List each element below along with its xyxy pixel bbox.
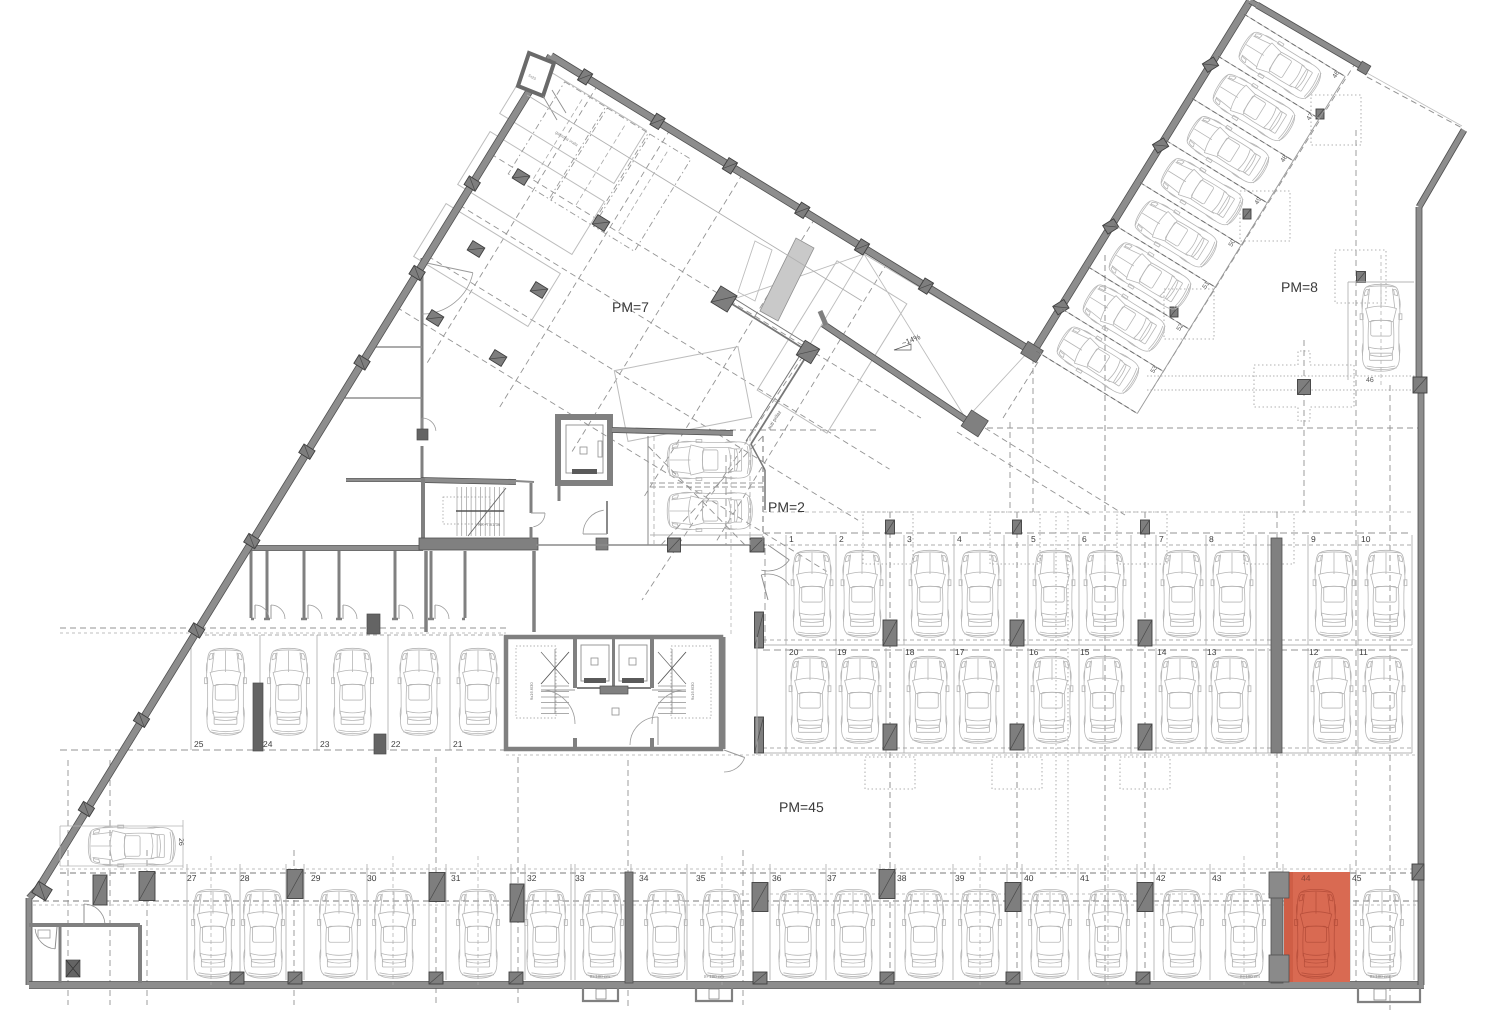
svg-text:41: 41 xyxy=(1080,873,1090,883)
svg-text:23: 23 xyxy=(320,739,330,749)
svg-text:PM=45: PM=45 xyxy=(779,799,824,815)
svg-text:PM=2: PM=2 xyxy=(768,499,805,515)
svg-text:29: 29 xyxy=(311,873,321,883)
svg-text:10: 10 xyxy=(1361,534,1371,544)
svg-text:21: 21 xyxy=(453,739,463,749)
svg-text:34: 34 xyxy=(639,873,649,883)
svg-text:45: 45 xyxy=(1352,873,1362,883)
svg-text:38: 38 xyxy=(897,873,907,883)
svg-text:24: 24 xyxy=(263,739,273,749)
svg-text:28: 28 xyxy=(240,873,250,883)
svg-text:9x16.6/30: 9x16.6/30 xyxy=(529,682,534,700)
svg-text:43: 43 xyxy=(1212,873,1222,883)
svg-text:7: 7 xyxy=(1159,534,1164,544)
svg-text:22: 22 xyxy=(391,739,401,749)
svg-text:9x16.6/30: 9x16.6/30 xyxy=(690,682,695,700)
svg-text:PM=7: PM=7 xyxy=(612,299,649,315)
svg-text:18: 18 xyxy=(905,647,915,657)
svg-text:14: 14 xyxy=(1157,647,1167,657)
svg-text:25: 25 xyxy=(194,739,204,749)
svg-text:20: 20 xyxy=(789,647,799,657)
svg-text:8+180 cm: 8+180 cm xyxy=(590,974,610,979)
svg-text:8+180 cm: 8+180 cm xyxy=(1240,974,1260,979)
svg-text:NK+7.61/36: NK+7.61/36 xyxy=(478,522,501,527)
svg-text:8: 8 xyxy=(1209,534,1214,544)
svg-text:35: 35 xyxy=(696,873,706,883)
svg-text:8+180 cm: 8+180 cm xyxy=(704,974,724,979)
svg-text:19: 19 xyxy=(837,647,847,657)
svg-text:42: 42 xyxy=(1156,873,1166,883)
svg-text:11: 11 xyxy=(1359,647,1368,657)
svg-text:1: 1 xyxy=(789,534,794,544)
svg-text:32: 32 xyxy=(527,873,537,883)
svg-text:5: 5 xyxy=(1031,534,1036,544)
svg-text:33: 33 xyxy=(575,873,585,883)
svg-text:37: 37 xyxy=(827,873,837,883)
svg-text:2: 2 xyxy=(839,534,844,544)
svg-text:6: 6 xyxy=(1082,534,1087,544)
svg-text:3: 3 xyxy=(907,534,912,544)
svg-text:16: 16 xyxy=(1029,647,1039,657)
svg-text:46: 46 xyxy=(1366,377,1374,384)
svg-text:44: 44 xyxy=(1301,873,1311,883)
svg-text:9: 9 xyxy=(1311,534,1316,544)
svg-text:12: 12 xyxy=(1309,647,1319,657)
svg-text:36: 36 xyxy=(772,873,782,883)
svg-text:27: 27 xyxy=(187,873,197,883)
svg-text:30: 30 xyxy=(367,873,377,883)
svg-text:39: 39 xyxy=(955,873,965,883)
svg-text:31: 31 xyxy=(451,873,461,883)
svg-text:40: 40 xyxy=(1024,873,1034,883)
svg-text:17: 17 xyxy=(955,647,965,657)
svg-text:8+180 cm: 8+180 cm xyxy=(1370,974,1390,979)
svg-text:4: 4 xyxy=(957,534,962,544)
svg-text:15: 15 xyxy=(1080,647,1090,657)
svg-text:PM=8: PM=8 xyxy=(1281,279,1318,295)
svg-text:13: 13 xyxy=(1207,647,1217,657)
